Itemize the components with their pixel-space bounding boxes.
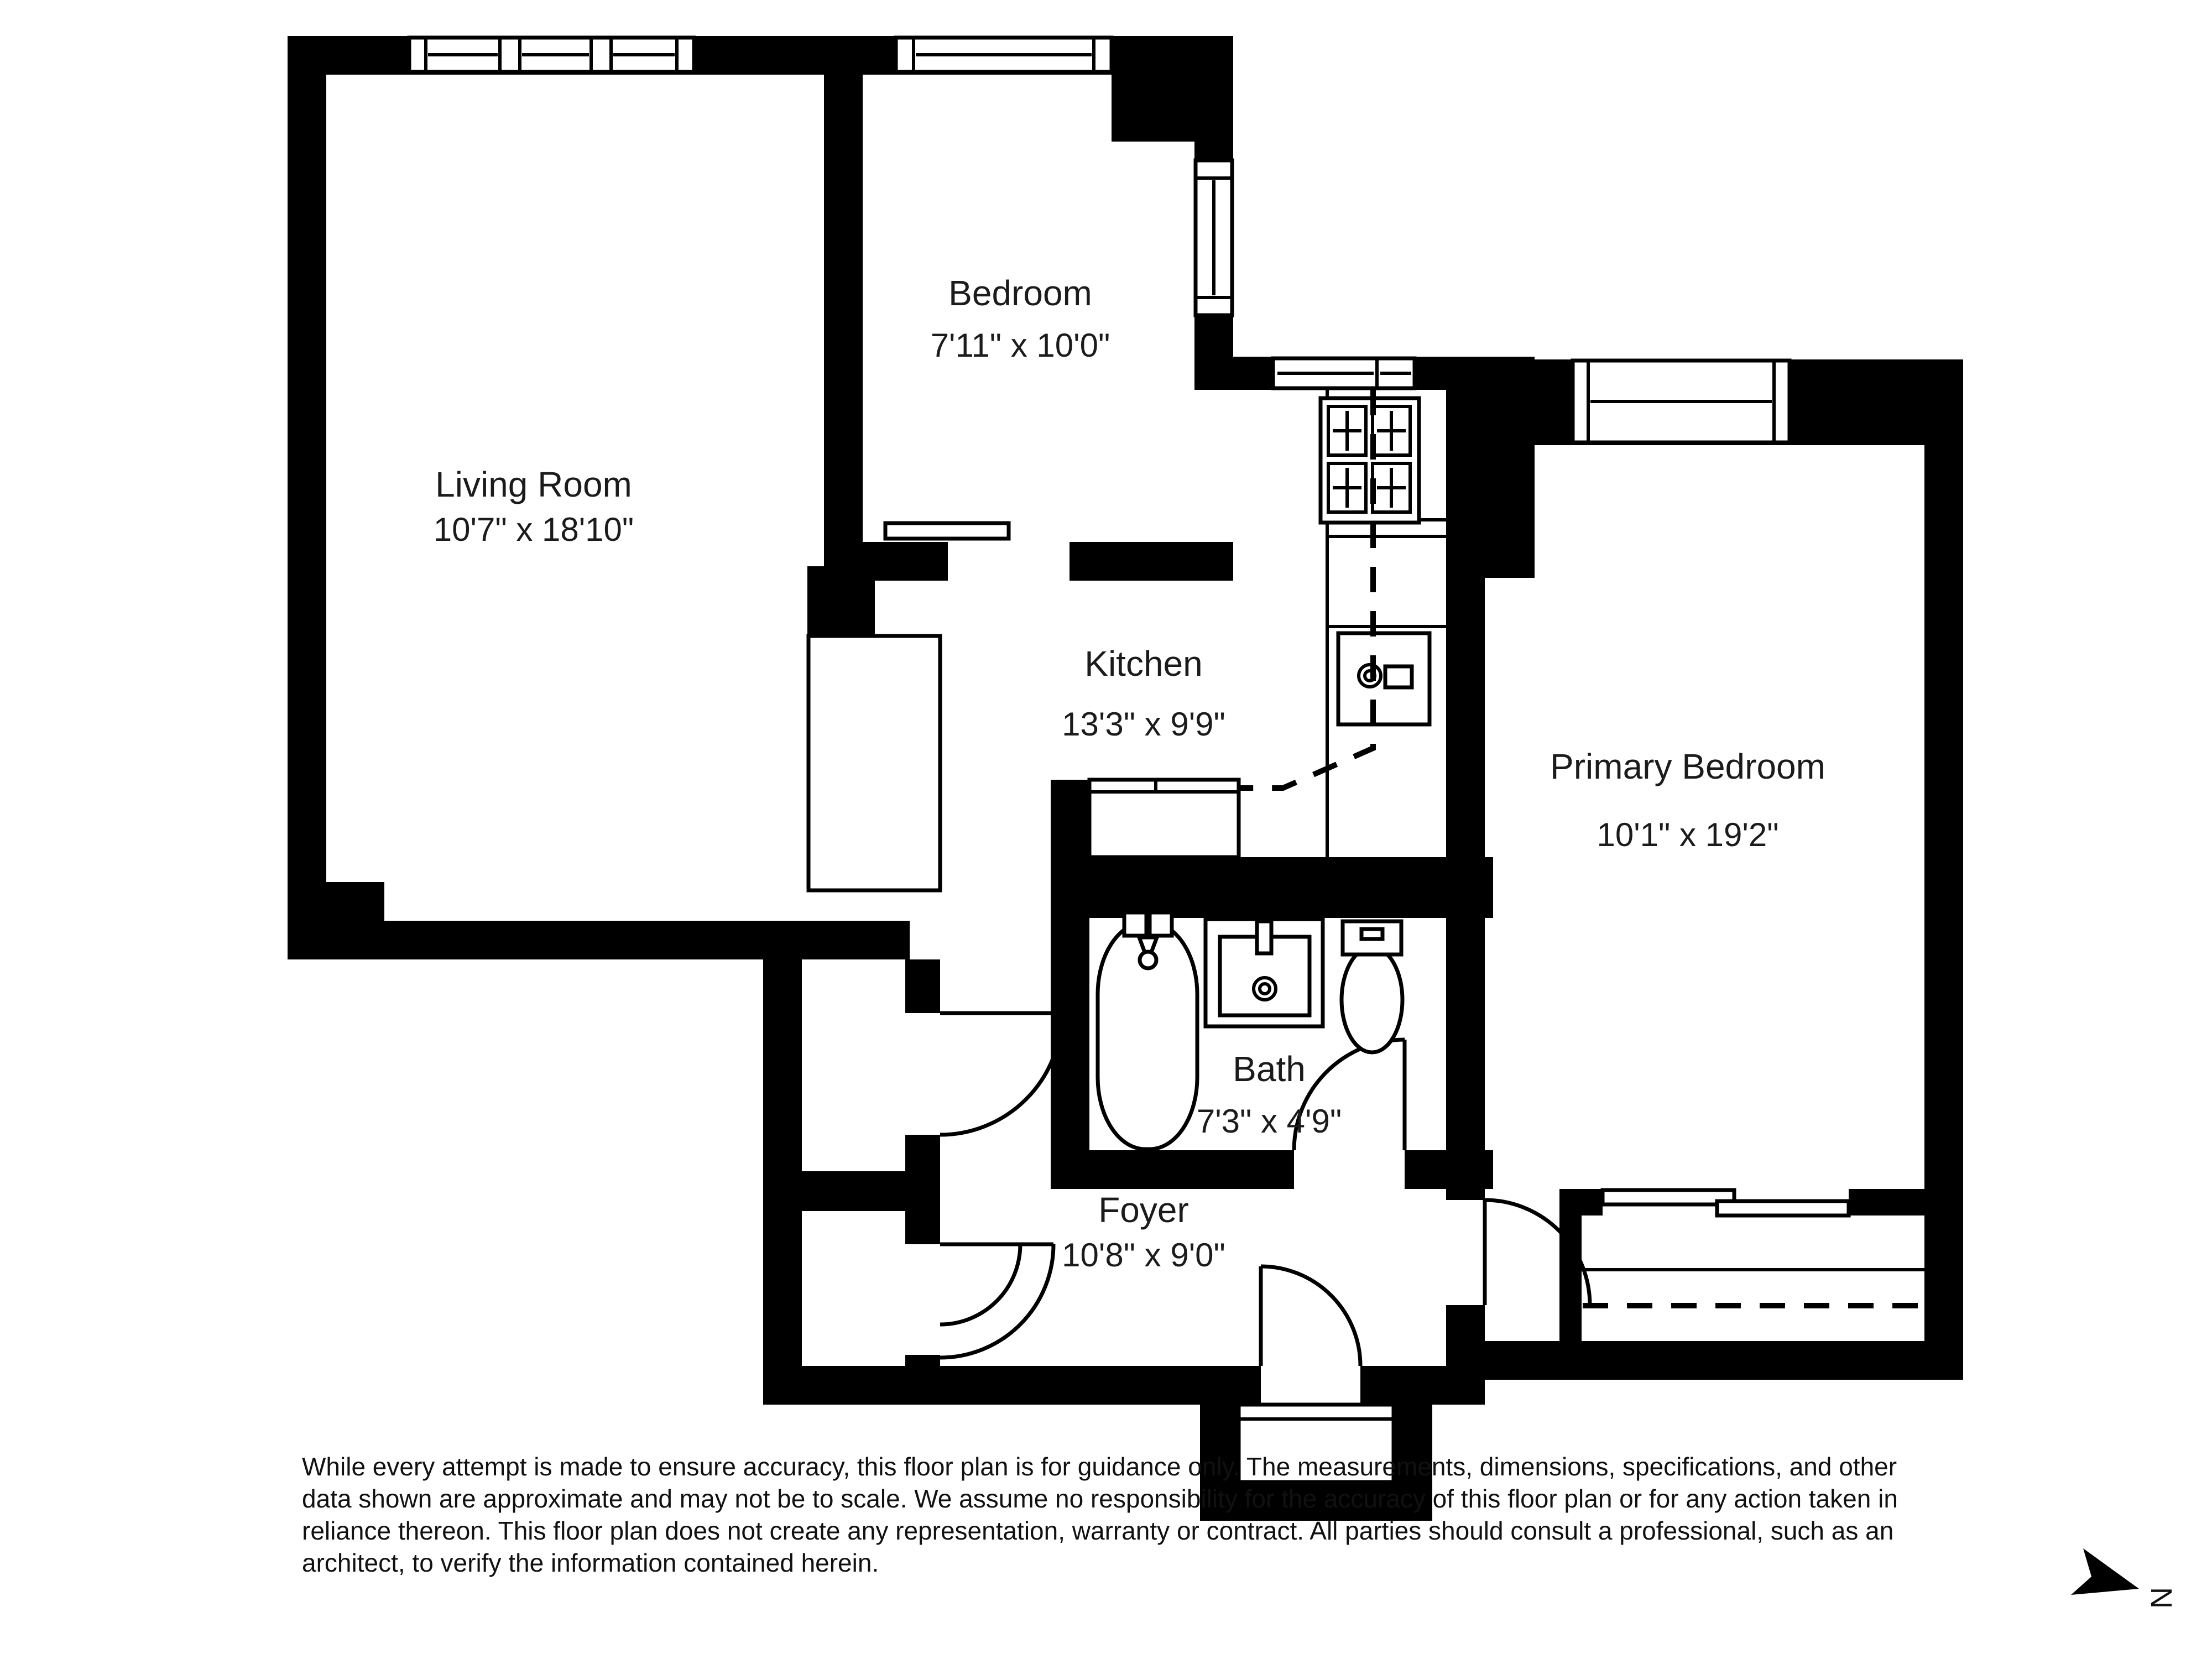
bath-dims: 7'3" x 4'9" (1197, 1103, 1342, 1140)
closet-door (940, 1244, 1053, 1358)
wall (905, 1355, 940, 1366)
kitchen-name: Kitchen (1084, 644, 1202, 684)
room-label-bedroom: Bedroom 7'11" x 10'0" (931, 273, 1110, 364)
room-label-bath: Bath 7'3" x 4'9" (1197, 1049, 1342, 1140)
disclaimer-line-2: data shown are approximate and may not b… (302, 1484, 1898, 1513)
north-label: N (2145, 1587, 2178, 1609)
bathroom-sink (1206, 919, 1323, 1026)
foyer-name: Foyer (1098, 1190, 1189, 1230)
wall (905, 1135, 940, 1171)
wall (288, 36, 326, 959)
room-label-living-room: Living Room 10'7" x 18'10" (434, 465, 634, 548)
entry-door (1261, 1266, 1360, 1366)
primary-closet (1582, 1270, 1924, 1306)
cabinet (808, 636, 940, 890)
room-label-foyer: Foyer 10'8" x 9'0" (1062, 1190, 1225, 1274)
disclaimer-text: While every attempt is made to ensure ac… (302, 1452, 1898, 1577)
kitchen-dims: 13'3" x 9'9" (1062, 706, 1225, 743)
wall (1051, 857, 1493, 918)
bathtub (1098, 912, 1197, 1149)
wall (1446, 1305, 1485, 1366)
bedroom-side-window (1196, 160, 1232, 315)
living-room-window (409, 38, 694, 72)
wall (1360, 1366, 1485, 1405)
wall (824, 36, 863, 581)
kitchen-sink (1338, 633, 1430, 724)
wall (763, 1366, 1261, 1405)
windows (409, 38, 1790, 442)
primary-closet-sliding-doors (1603, 1190, 1849, 1215)
room-label-primary-bedroom: Primary Bedroom 10'1" x 19'2" (1550, 747, 1825, 853)
floor-plan: Living Room 10'7" x 18'10" Bedroom 7'11"… (0, 0, 2212, 1659)
living-room-dims: 10'7" x 18'10" (434, 511, 634, 548)
closet-door (940, 1013, 1062, 1135)
wall (1924, 359, 1963, 1380)
disclaimer-line-3: reliance thereon. This floor plan does n… (302, 1516, 1893, 1545)
compass: N (2071, 1548, 2178, 1609)
wall (1559, 1189, 1603, 1215)
kitchen-counter-peninsula (1089, 780, 1239, 857)
wall (1051, 1150, 1294, 1189)
primary-bedroom-dims: 10'1" x 19'2" (1597, 816, 1778, 853)
wall (905, 1211, 940, 1244)
wall (288, 921, 910, 959)
primary-bedroom-window (1573, 361, 1790, 442)
bath-name: Bath (1233, 1049, 1306, 1089)
bedroom-name: Bedroom (948, 273, 1092, 313)
wall (1051, 780, 1089, 1189)
north-arrow-icon (2071, 1548, 2139, 1595)
fixtures (808, 390, 1924, 1482)
wall (1070, 542, 1233, 581)
room-label-kitchen: Kitchen 13'3" x 9'9" (1062, 644, 1225, 743)
bedroom-dims: 7'11" x 10'0" (931, 327, 1110, 364)
wall (1405, 1150, 1493, 1189)
disclaimer-line-4: architect, to verify the information con… (302, 1548, 879, 1577)
bedroom-window (896, 38, 1112, 72)
primary-bedroom-name: Primary Bedroom (1550, 747, 1825, 786)
wall (1849, 1189, 1924, 1215)
foyer-dims: 10'8" x 9'0" (1062, 1237, 1225, 1274)
wall (802, 1171, 940, 1211)
wall (905, 959, 940, 1013)
wall (1485, 1341, 1963, 1380)
wall (763, 921, 802, 1405)
wall (863, 542, 948, 581)
toilet (1342, 921, 1402, 1052)
disclaimer-line-1: While every attempt is made to ensure ac… (302, 1452, 1897, 1481)
kitchen-window (1273, 358, 1415, 388)
stove (1321, 398, 1419, 523)
wall (1112, 75, 1233, 142)
bedroom-sliding-door (885, 523, 1009, 539)
living-room-name: Living Room (435, 465, 632, 504)
